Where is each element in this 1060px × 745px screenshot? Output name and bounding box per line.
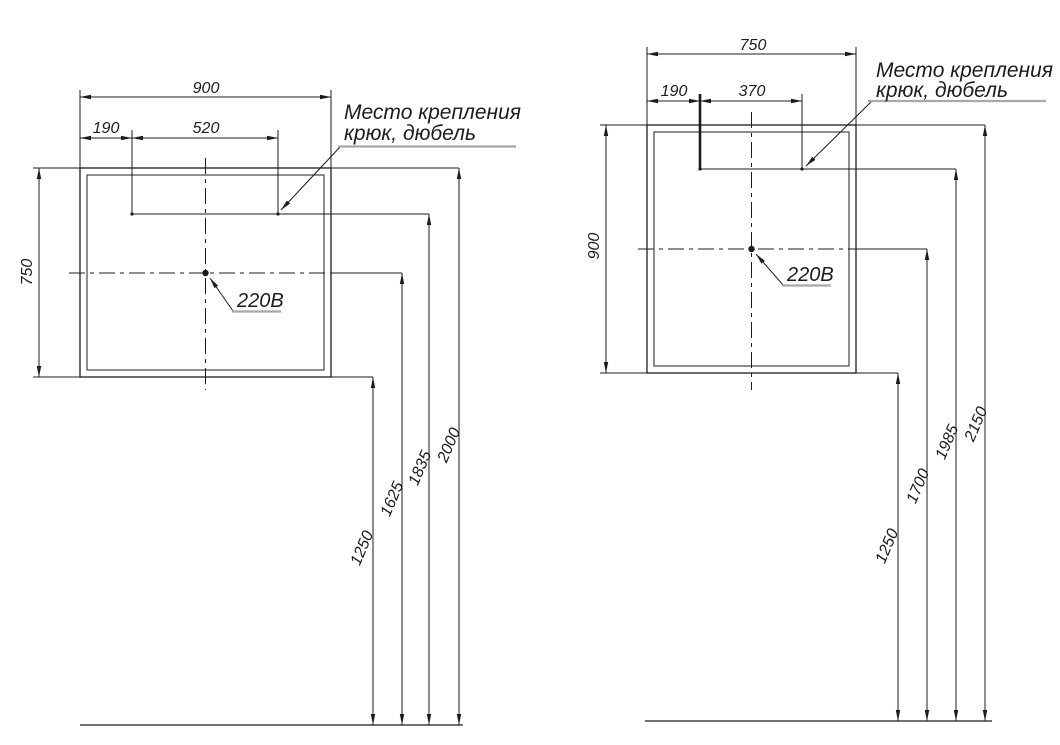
- hook-point-left: [130, 212, 133, 215]
- outlet-leader-line: [756, 254, 783, 285]
- dim-text-hook-offset: 190: [93, 120, 120, 137]
- dim-text-hook-spacing: 370: [739, 83, 766, 100]
- dim-text-height-hook: 1985: [933, 422, 963, 462]
- outlet-label: 220В: [236, 290, 284, 312]
- hook-point-left: [698, 167, 701, 170]
- mount-note-line2: крюк, дюбель: [344, 122, 476, 145]
- right-view: 750 190 370 900 220В Место крепления крю…: [586, 37, 1053, 721]
- mount-note-line1: Место крепления: [344, 101, 521, 124]
- dim-text-overall-width: 900: [193, 80, 220, 97]
- dim-text-height-hook: 1835: [406, 448, 436, 488]
- dim-text-panel-height: 900: [586, 233, 603, 260]
- hook-point-right: [276, 212, 279, 215]
- drawing-canvas: 900 190 520 750 220В Место крепления крю…: [0, 0, 1060, 745]
- outlet-point: [202, 270, 208, 276]
- mount-note-leader-line: [806, 102, 871, 166]
- dim-text-hook-offset: 190: [661, 83, 688, 100]
- mount-note-line2: крюк, дюбель: [876, 79, 1008, 102]
- outlet-point: [748, 246, 754, 252]
- dim-text-hook-spacing: 520: [193, 120, 220, 137]
- left-view: 900 190 520 750 220В Место крепления крю…: [19, 80, 521, 725]
- dim-text-height-outlet: 1625: [378, 479, 408, 519]
- dim-text-panel-height: 750: [19, 259, 36, 286]
- outlet-leader-line: [210, 278, 233, 311]
- dim-text-height-top: 2150: [961, 404, 991, 444]
- dim-text-overall-width: 750: [740, 37, 767, 54]
- hook-point-right: [800, 167, 803, 170]
- dim-text-height-top: 2000: [434, 425, 464, 465]
- dim-text-height-outlet: 1700: [904, 466, 934, 506]
- technical-drawing: 900 190 520 750 220В Место крепления крю…: [0, 0, 1060, 745]
- outlet-label: 220В: [786, 264, 834, 286]
